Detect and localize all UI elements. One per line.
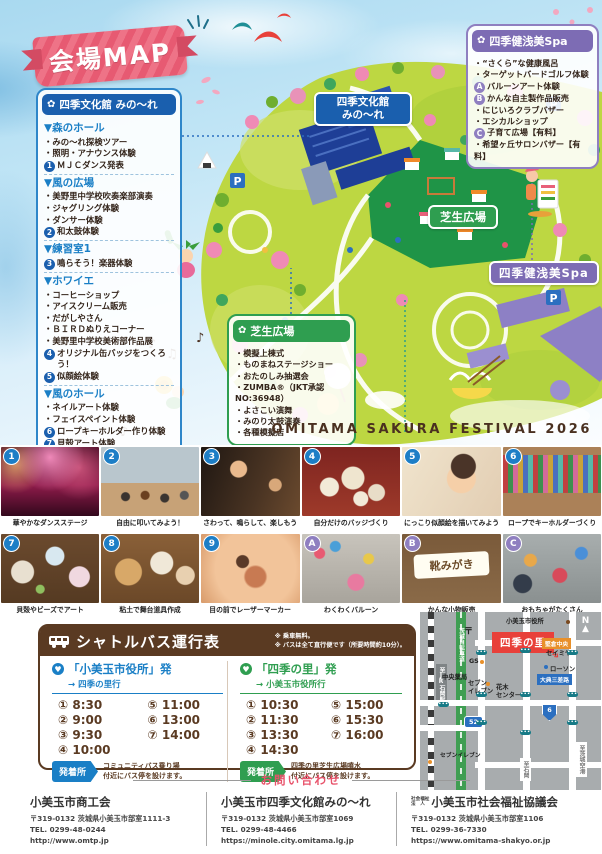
poi-dot — [544, 665, 548, 669]
location-pin-icon — [52, 663, 64, 675]
departure-time: ⑥ 15:30 — [331, 713, 402, 728]
departure-time: ⑦ 14:00 — [148, 728, 224, 743]
compass-north: N▲ — [578, 616, 593, 633]
photo-caption: 貝殻やビーズでアート — [3, 605, 97, 615]
org-url: https://www.omitama-shakyo.or.jp — [411, 835, 578, 846]
access-street-map: 至JR石岡駅 茨城自転車道 小美玉市役所 〒 四季の里 GS 中央薬局 セブン … — [420, 612, 601, 790]
flower-icon — [238, 326, 246, 336]
inquiry-header: お問い合わせ — [0, 772, 602, 788]
poi-dot — [480, 660, 484, 664]
minole-box-title: 四季文化館 みの〜れ — [59, 97, 157, 112]
photo-card: 9 目の前でレーザーマーカー — [201, 534, 299, 615]
event-label: ・ＢＩＲＤぬりえコーナー — [44, 324, 145, 336]
photo-badge: B — [404, 535, 421, 552]
departure-times: ① 10:30② 11:30③ 13:30④ 14:30⑤ 15:00⑥ 15:… — [246, 698, 402, 758]
bird-icon — [232, 23, 252, 31]
event-item: ・アイスクリーム販売 — [44, 301, 174, 313]
photo-caption: 自分だけのバッジづくり — [303, 518, 397, 528]
lawson-label: ローソン — [550, 664, 575, 673]
event-item: ・ジャグリング体験 — [44, 203, 174, 215]
city-hall-label: 小美玉市役所 — [506, 616, 544, 625]
departure-time: ③ 9:30 — [58, 728, 134, 743]
photo-badge: 6 — [505, 448, 522, 465]
photo-badge: 7 — [3, 535, 20, 552]
org-url: http://www.omtp.jp — [30, 835, 198, 846]
event-label: ・“さくら”な健康風呂 — [474, 58, 558, 69]
lawn-box-header: 芝生広場 — [233, 320, 350, 342]
event-item: 3鳴らそう！楽器体験 — [44, 258, 174, 270]
junction-label: 大典三差路 — [537, 674, 572, 685]
departure-time: ⑤ 11:00 — [148, 698, 224, 713]
section-heading: ▼風のホール — [44, 388, 174, 402]
org-prefix: 社会福祉法 人 — [411, 797, 429, 808]
event-label: ・だがしやさん — [44, 313, 103, 325]
event-item: ・照明・アナウンス体験 — [44, 148, 174, 160]
departure-time: ① 10:30 — [246, 698, 317, 713]
event-item: 1ＭＪＣダンス発表 — [44, 160, 174, 172]
contact-shokokai: 小美玉市商工会 〒319-0132 茨城県小美玉市部室1111-3 TEL. 0… — [16, 792, 206, 846]
departure-time: ③ 13:30 — [246, 728, 317, 743]
event-label: ・模擬上棟式 — [235, 348, 284, 359]
bus-stop-marker — [438, 702, 449, 707]
event-label: 和太鼓体験 — [57, 226, 99, 238]
svg-text:♪: ♪ — [196, 331, 204, 346]
letter-badge: B — [474, 94, 485, 105]
departure-time: ④ 14:30 — [246, 743, 317, 758]
photo-section: 1 華やかなダンスステージ 2 自由に叩いてみよう！ 3 さ — [0, 445, 602, 617]
shuttle-title: シャトルバス運行表 — [76, 631, 220, 652]
event-label: ・希望ヶ丘サロンバザー【有料】 — [474, 139, 591, 162]
event-item: ・希望ヶ丘サロンバザー【有料】 — [474, 139, 591, 162]
departure-time: ⑦ 16:00 — [331, 728, 402, 743]
photo-card: 6 ロープでキーホルダーづくり — [503, 447, 601, 528]
photo-caption: 粘土で舞台道具作成 — [103, 605, 197, 615]
bus-stop-marker — [520, 692, 531, 697]
pharmacy-label: 中央薬局 — [442, 672, 467, 681]
section-heading: ▼森のホール — [44, 122, 174, 136]
bus-stop-marker — [567, 692, 578, 697]
departure-time: ① 8:30 — [58, 698, 134, 713]
event-label: ・ターゲットバードゴルフ体験 — [474, 69, 589, 80]
route-from-shiki-no-sato: 「四季の里」発 → 小美玉市役所行 ① 10:30② 11:30③ 13:30④… — [227, 661, 406, 782]
event-item: ・にじいろクラブバザー — [474, 105, 591, 116]
departure-time: ② 11:30 — [246, 713, 317, 728]
org-tel: TEL. 0299-48-4466 — [221, 824, 388, 835]
event-item: ・ものまねステージショー — [235, 359, 348, 370]
departure-time: ④ 10:00 — [58, 743, 134, 758]
org-name: 小美玉市商工会 — [30, 794, 198, 810]
shuttle-note: ※ バスは全て直行便です（所要時間約10分）。 — [275, 641, 406, 650]
photo-caption: にっこり似顔絵を描いてみよう — [404, 518, 499, 528]
event-item: ・ダンサー体験 — [44, 215, 174, 227]
letter-badge: C — [474, 128, 485, 139]
event-label: ・照明・アナウンス体験 — [44, 148, 136, 160]
bus-icon — [48, 634, 70, 649]
number-badge: 5 — [44, 372, 55, 383]
event-label: ・おたのしみ抽選会 — [235, 371, 309, 382]
map-label-lawn: 芝生広場 — [428, 205, 498, 229]
event-item: ・ネイルアート体験 — [44, 402, 174, 414]
photo-card: 7 貝殻やビーズでアート — [1, 534, 99, 615]
section-practice-room: ▼練習室1 3鳴らそう！楽器体験 — [44, 240, 174, 270]
flower-icon — [477, 36, 485, 46]
event-label: ・エシカルショップ — [474, 116, 548, 127]
map-label-minole: 四季文化館 みの〜れ — [314, 92, 412, 126]
minole-box-header: 四季文化館 みの〜れ — [42, 94, 176, 115]
event-label: ロープキーホルダー作り体験 — [57, 426, 165, 438]
event-label: バルーンアート体験 — [487, 81, 560, 92]
hanaki-center-label: 花木 センター — [496, 684, 521, 699]
departure-time: ② 9:00 — [58, 713, 134, 728]
photo-caption: ロープでキーホルダーづくり — [505, 518, 599, 528]
event-label: 鳴らそう！楽器体験 — [57, 258, 132, 270]
photo-sign-text: 靴みがき — [413, 551, 489, 579]
photo-card: 1 華やかなダンスステージ — [1, 447, 99, 528]
departure-time: ⑥ 13:00 — [148, 713, 224, 728]
bus-stop-marker — [476, 692, 487, 697]
bus-stop-marker — [520, 648, 531, 653]
bird-icon — [277, 14, 291, 19]
event-item: ・ZUMBA®（JKT承認NO:36948） — [235, 382, 348, 405]
gas-station-label: GS — [469, 658, 479, 665]
shuttle-bus-header: シャトルバス運行表 ※ 乗車無料。※ バスは全て直行便です（所要時間約10分）。 — [40, 626, 414, 656]
photo-badge: C — [505, 535, 522, 552]
event-item: ・コーヒーショップ — [44, 290, 174, 302]
event-label: ・ジャグリング体験 — [44, 203, 119, 215]
photo-badge: 4 — [304, 448, 321, 465]
event-label: かんな自主製作品販売 — [487, 93, 569, 104]
route-6-shield: 6 — [542, 704, 557, 721]
contact-section: 小美玉市商工会 〒319-0132 茨城県小美玉市部室1111-3 TEL. 0… — [0, 792, 602, 846]
poi-dot — [486, 682, 490, 686]
event-item: ・だがしやさん — [44, 313, 174, 325]
event-item: C子育て広場【有料】 — [474, 127, 591, 139]
org-name: 小美玉市四季文化館みの〜れ — [221, 794, 388, 810]
event-item: Aバルーンアート体験 — [474, 81, 591, 93]
contact-shakyo: 社会福祉法 人 小美玉市社会福祉協議会 〒319-0132 茨城県小美玉市部室1… — [396, 792, 586, 846]
event-item: 4オリジナル缶バッジをつくろう！ — [44, 348, 174, 371]
sparkle-icon — [188, 16, 208, 28]
bird-icon — [254, 32, 282, 43]
number-badge: 2 — [44, 227, 55, 238]
event-item: 5似顔絵体験 — [44, 371, 174, 383]
event-label: ・フェイスペイント体験 — [44, 414, 135, 426]
org-tel: TEL. 0299-36-7330 — [411, 824, 578, 835]
photo-card: 4 自分だけのバッジづくり — [302, 447, 400, 528]
flower-icon — [47, 100, 55, 110]
event-item: 2和太鼓体験 — [44, 226, 174, 238]
event-item: ・ＢＩＲＤぬりえコーナー — [44, 324, 174, 336]
photo-caption: 自由に叩いてみよう！ — [103, 518, 197, 528]
event-label: ・ものまねステージショー — [235, 359, 333, 370]
section-heading: ▼風の広場 — [44, 177, 174, 191]
shuttle-note: ※ 乗車無料。 — [275, 632, 406, 641]
route-to: → 四季の里行 — [68, 678, 223, 690]
section-heading: ▼ホワイエ — [44, 275, 174, 289]
spa-info-box: 四季健浅美Spa ・“さくら”な健康風呂・ターゲットバードゴルフ体験Aバルーンア… — [466, 24, 599, 169]
number-badge: 4 — [44, 349, 55, 360]
event-label: ・ネイルアート体験 — [44, 402, 119, 414]
photo-badge: A — [304, 535, 321, 552]
map-banner-title: 会場MAP — [47, 33, 172, 80]
departure-time: ⑤ 15:00 — [331, 698, 402, 713]
org-address: 〒319-0132 茨城県小美玉市部室1106 — [411, 813, 578, 824]
divider-line — [352, 780, 470, 781]
event-item: ・おたのしみ抽選会 — [235, 371, 348, 382]
event-label: 子育て広場【有料】 — [487, 127, 561, 138]
seven-eleven-label: セブンイレブン — [440, 750, 481, 759]
photo-card: 3 さわって、鳴らして、楽しもう — [201, 447, 299, 528]
svg-text:P: P — [549, 292, 557, 305]
event-label: ・アイスクリーム販売 — [44, 301, 127, 313]
number-badge: 3 — [44, 259, 55, 270]
spa-box-header: 四季健浅美Spa — [472, 30, 593, 52]
section-foyer: ▼ホワイエ ・コーヒーショップ・アイスクリーム販売・だがしやさん・ＢＩＲＤぬりえ… — [44, 272, 174, 383]
event-item: Bかんな自主製作品販売 — [474, 93, 591, 105]
event-label: ＭＪＣダンス発表 — [57, 160, 124, 172]
number-badge: 1 — [44, 161, 55, 172]
photo-card: 5 にっこり似顔絵を描いてみよう — [402, 447, 501, 528]
spa-box-title: 四季健浅美Spa — [489, 33, 567, 49]
bus-stop-marker — [476, 720, 487, 725]
event-item: ・みの〜れ探検ツアー — [44, 137, 174, 149]
event-item: ・美野里中学校美術部作品展 — [44, 336, 174, 348]
photo-card: 2 自由に叩いてみよう！ — [101, 447, 199, 528]
event-item: ・フェイスペイント体験 — [44, 414, 174, 426]
svg-text:P: P — [233, 175, 241, 188]
photo-caption: 華やかなダンスステージ — [3, 518, 97, 528]
shuttle-bus-panel: シャトルバス運行表 ※ 乗車無料。※ バスは全て直行便です（所要時間約10分）。… — [38, 624, 416, 770]
map-label-spa: 四季健浅美Spa — [489, 261, 599, 285]
festival-title: OMITAMA SAKURA FESTIVAL 2026 — [271, 422, 592, 437]
section-heading: ▼練習室1 — [44, 243, 174, 257]
event-item: ・“さくら”な健康風呂 — [474, 58, 591, 69]
event-label: オリジナル缶バッジをつくろう！ — [57, 348, 174, 371]
bus-stop-marker — [520, 730, 531, 735]
section-mori-hall: ▼森のホール ・みの〜れ探検ツアー・照明・アナウンス体験1ＭＪＣダンス発表 — [44, 120, 174, 172]
event-item: ・よさこい演舞 — [235, 405, 348, 416]
org-address: 〒319-0132 茨城県小美玉市部室1069 — [221, 813, 388, 824]
photo-card: 靴みがき B かんな小物販売 — [402, 534, 501, 615]
org-address: 〒319-0132 茨城県小美玉市部室1111-3 — [30, 813, 198, 824]
route-to: → 小美玉市役所行 — [256, 678, 402, 690]
inquiry-title: お問い合わせ — [261, 772, 342, 788]
bus-stop-marker — [567, 650, 578, 655]
event-label: ・よさこい演舞 — [235, 405, 292, 416]
minole-info-box: 四季文化館 みの〜れ ▼森のホール ・みの〜れ探検ツアー・照明・アナウンス体験1… — [36, 88, 182, 460]
event-label: ・美野里中学校吹奏楽部演奏 — [44, 191, 153, 203]
event-label: ・コーヒーショップ — [44, 290, 119, 302]
location-pin-icon — [240, 663, 252, 675]
letter-badge: A — [474, 82, 485, 93]
poi-dot — [566, 620, 570, 624]
event-label: ・美野里中学校美術部作品展 — [44, 336, 153, 348]
lawn-box-title: 芝生広場 — [250, 323, 294, 339]
photo-card: A わくわくバルーン — [302, 534, 400, 615]
number-badge: 6 — [44, 427, 55, 438]
contact-minole: 小美玉市四季文化館みの〜れ 〒319-0132 茨城県小美玉市部室1069 TE… — [206, 792, 396, 846]
event-label: ・ダンサー体験 — [44, 215, 103, 227]
event-item: ・美野里中学校吹奏楽部演奏 — [44, 191, 174, 203]
event-item: 6ロープキーホルダー作り体験 — [44, 426, 174, 438]
org-tel: TEL. 0299-48-0244 — [30, 824, 198, 835]
org-name: 社会福祉法 人 小美玉市社会福祉協議会 — [411, 794, 578, 810]
bus-stop-marker — [476, 650, 487, 655]
route-from: 「四季の里」発 — [256, 661, 337, 677]
photo-card: 8 粘土で舞台道具作成 — [101, 534, 199, 615]
event-label: ・ZUMBA®（JKT承認NO:36948） — [235, 382, 348, 405]
event-label: ・みの〜れ探検ツアー — [44, 137, 127, 149]
photo-caption: 目の前でレーザーマーカー — [203, 605, 297, 615]
photo-card: C おもちゃがたくさん — [503, 534, 601, 615]
event-item: ・模擬上棟式 — [235, 348, 348, 359]
event-label: 似顔絵体験 — [57, 371, 99, 383]
flyer-page: P P P — [0, 0, 602, 854]
event-item: ・ターゲットバードゴルフ体験 — [474, 69, 591, 80]
photo-caption: さわって、鳴らして、楽しもう — [203, 518, 297, 528]
event-label: ・にじいろクラブバザー — [474, 105, 564, 116]
section-kaze-plaza: ▼風の広場 ・美野里中学校吹奏楽部演奏・ジャグリング体験・ダンサー体験2和太鼓体… — [44, 174, 174, 238]
poi-dot — [428, 760, 432, 764]
post-office-icon: 〒 — [464, 624, 473, 637]
event-item: ・エシカルショップ — [474, 116, 591, 127]
photo-badge: 1 — [3, 448, 20, 465]
photo-caption: わくわくバルーン — [303, 605, 397, 615]
route-from: 「小美玉市役所」発 — [68, 661, 172, 677]
departure-times: ① 8:30② 9:00③ 9:30④ 10:00⑤ 11:00⑥ 13:00⑦… — [58, 698, 223, 758]
route-from-city-hall: 「小美玉市役所」発 → 四季の里行 ① 8:30② 9:00③ 9:30④ 10… — [48, 661, 227, 782]
bus-stop-marker — [567, 720, 578, 725]
divider-line — [133, 780, 251, 781]
shuttle-notes: ※ 乗車無料。※ バスは全て直行便です（所要時間約10分）。 — [275, 632, 406, 651]
org-url: https://minole.city.omitama.lg.jp — [221, 835, 388, 846]
photo-badge: 5 — [404, 448, 421, 465]
